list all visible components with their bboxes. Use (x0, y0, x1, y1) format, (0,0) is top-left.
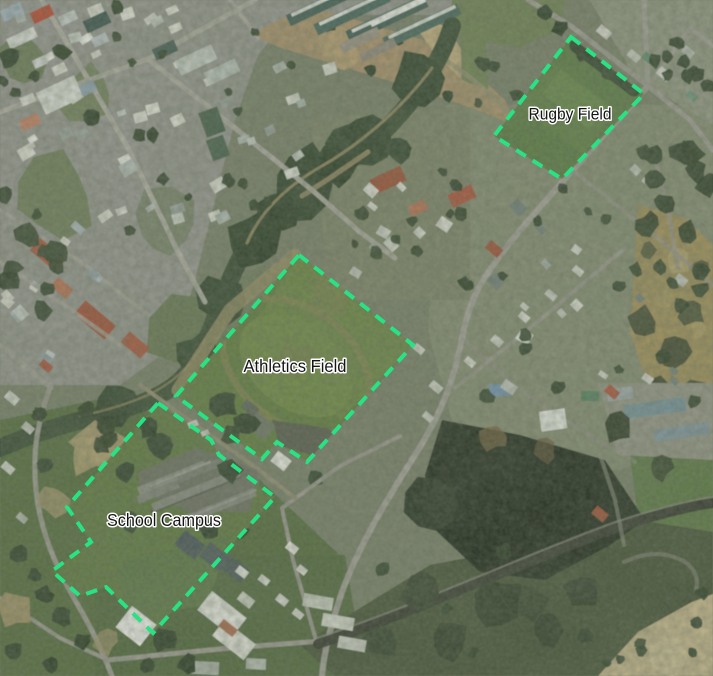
svg-text:Athletics Field: Athletics Field (244, 356, 347, 376)
svg-text:Rugby Field: Rugby Field (529, 105, 612, 124)
svg-text:School Campus: School Campus (107, 510, 221, 530)
